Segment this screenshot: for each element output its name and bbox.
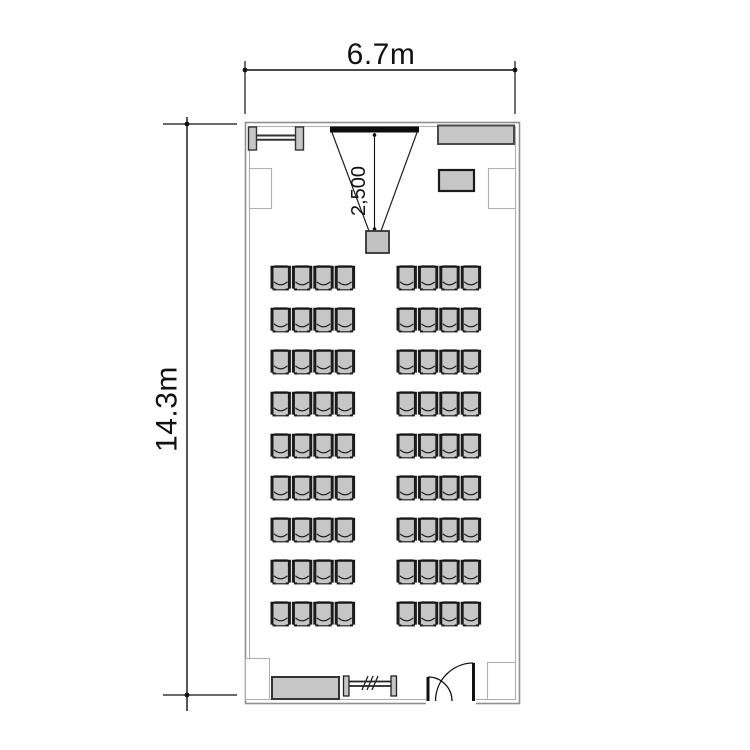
width-dimension-label: 6.7m [347,38,416,71]
chair [292,518,312,542]
chair [418,476,438,500]
chair [313,560,333,584]
chair [397,392,417,416]
chair [313,518,333,542]
radiator-end-plate [344,676,350,696]
chair [418,266,438,290]
chair [397,266,417,290]
chair [461,518,481,542]
chair [335,266,355,290]
wall-pier-top-left [250,169,272,209]
wall-pier-bottom-left [246,659,270,700]
height-dimension: 14.3m [151,117,238,711]
chair [439,518,459,542]
dimension-tick [185,693,190,698]
chair [335,602,355,626]
chair [439,560,459,584]
chair [271,350,291,374]
chair [313,602,333,626]
chair [397,308,417,332]
chair [397,350,417,374]
chair [439,308,459,332]
chair [292,602,312,626]
chair [335,434,355,458]
chair [313,350,333,374]
chair [461,266,481,290]
chair [397,434,417,458]
chair [335,560,355,584]
chair [418,308,438,332]
chair [271,560,291,584]
width-dimension: 6.7m [243,38,518,114]
chair [271,476,291,500]
chair [418,602,438,626]
chair [418,560,438,584]
chair [418,518,438,542]
wall-pier-top-right [489,169,516,209]
chair [271,518,291,542]
chair [397,602,417,626]
chair [461,476,481,500]
lectern [439,170,474,191]
chair [461,602,481,626]
chair [292,266,312,290]
chair [335,308,355,332]
chair [313,434,333,458]
chair [335,350,355,374]
chair [313,266,333,290]
chair [461,308,481,332]
dimension-tick [243,68,248,73]
projection-distance-label: 2,500 [348,166,370,216]
chair [418,434,438,458]
chair [418,392,438,416]
chair [292,392,312,416]
chair [461,434,481,458]
chair [418,350,438,374]
chair [271,602,291,626]
radiator-end-plate [249,127,257,150]
floorplan-drawing: 6.7m 14.3m [0,0,750,750]
chair [439,266,459,290]
chair [461,350,481,374]
projection-screen [330,127,419,133]
floorplan-canvas: 6.7m 14.3m [0,0,750,750]
wall-pier-bottom-right [488,663,516,700]
dimension-tick [185,122,190,127]
chair [271,434,291,458]
chair [335,392,355,416]
chair [292,434,312,458]
chair [335,518,355,542]
chair [292,350,312,374]
dimension-tick [373,133,377,137]
chair [271,266,291,290]
radiator-end-plate [296,127,304,150]
chair [313,476,333,500]
height-dimension-label: 14.3m [151,366,184,452]
chair [271,308,291,332]
chair [313,308,333,332]
projector [366,231,389,253]
chair [397,476,417,500]
chair [439,476,459,500]
chair [397,518,417,542]
chair [439,602,459,626]
chair [439,350,459,374]
chair [313,392,333,416]
dimension-tick [513,68,518,73]
chair [292,560,312,584]
cabinet [438,126,514,145]
chair [397,560,417,584]
chair [439,434,459,458]
chair [461,392,481,416]
chair [271,392,291,416]
sideboard [272,677,339,699]
chair [292,476,312,500]
chair [292,308,312,332]
chair [439,392,459,416]
radiator-end-plate [391,676,397,696]
chair [461,560,481,584]
chair [335,476,355,500]
